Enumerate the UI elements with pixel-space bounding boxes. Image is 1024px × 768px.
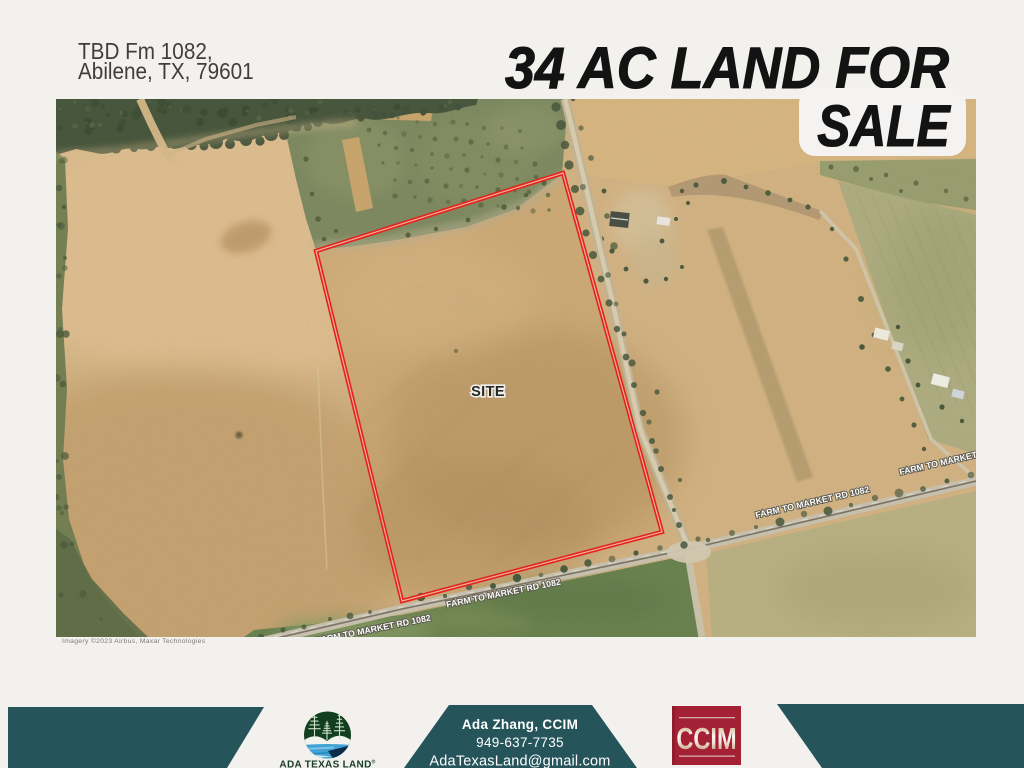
svg-text:Ada Zhang, CCIM: Ada Zhang, CCIM <box>462 717 578 732</box>
svg-text:AdaTexasLand@gmail.com: AdaTexasLand@gmail.com <box>429 754 610 768</box>
svg-text:949-637-7735: 949-637-7735 <box>476 735 564 750</box>
svg-text:ADA TEXAS LAND®: ADA TEXAS LAND® <box>279 759 375 768</box>
svg-text:CCIM: CCIM <box>676 721 736 756</box>
